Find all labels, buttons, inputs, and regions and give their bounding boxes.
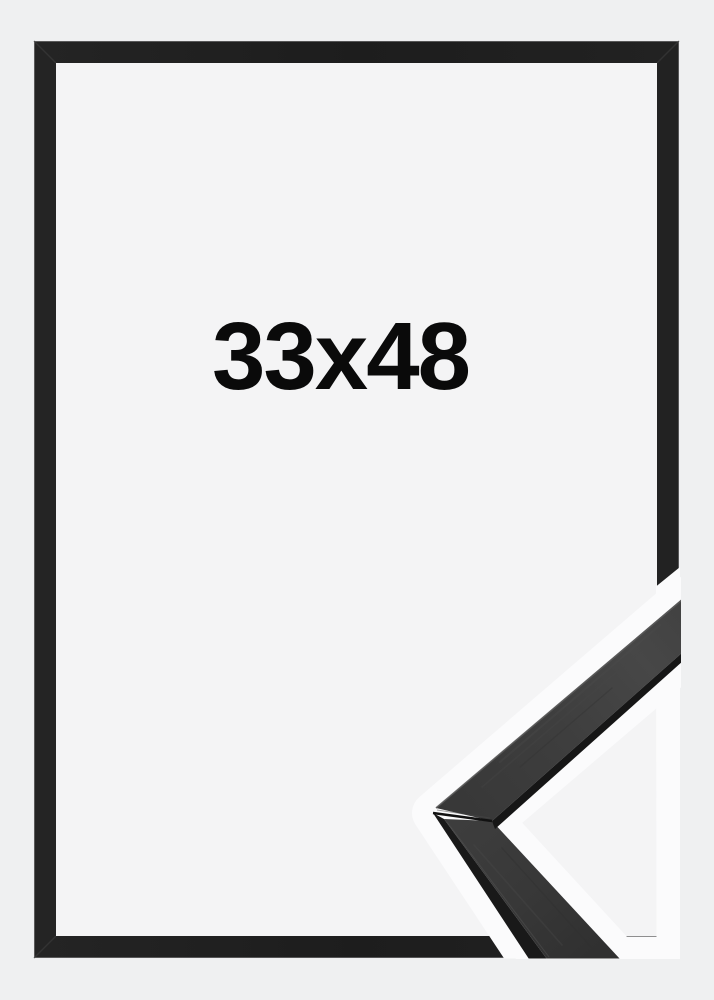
product-photo: 33x48	[0, 0, 714, 1000]
frame-interior	[56, 63, 657, 936]
size-label: 33x48	[0, 309, 681, 405]
frame-graphic	[0, 0, 714, 1000]
